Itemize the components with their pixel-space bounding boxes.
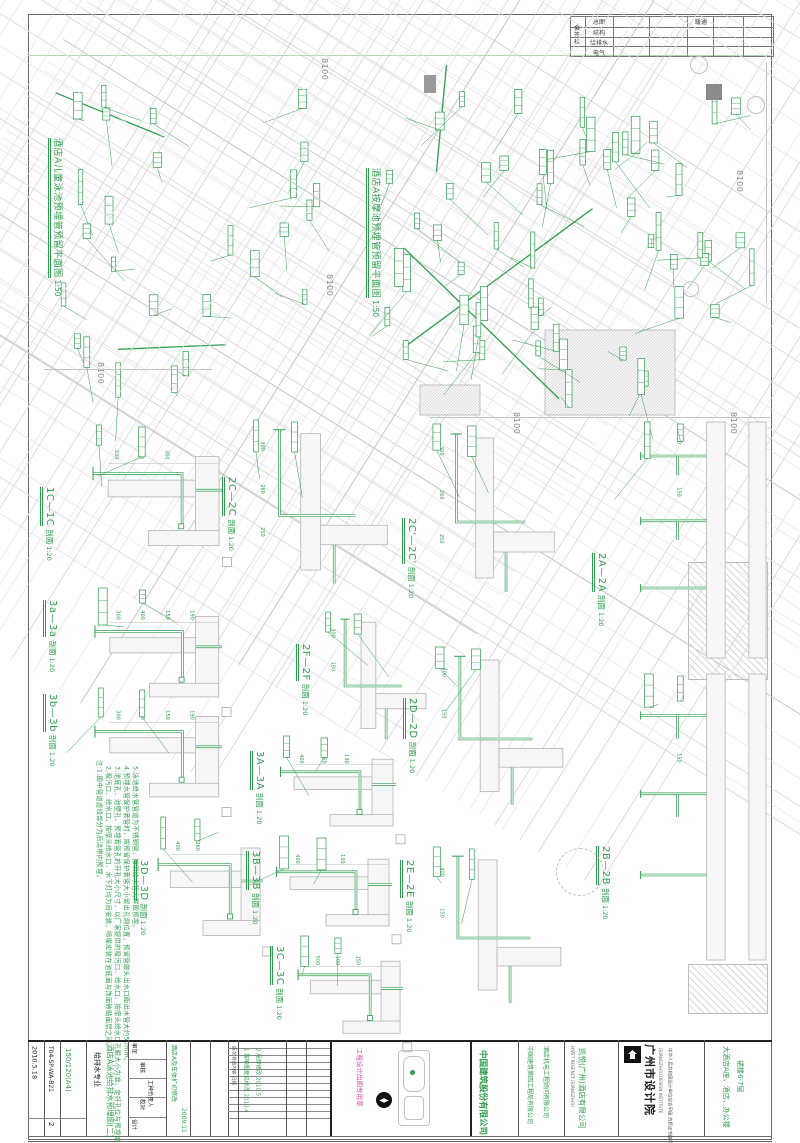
section-detail-2E: 400150 xyxy=(426,845,571,1031)
section-label-3B: 3B—3B剖面1:20 xyxy=(250,851,266,925)
tb-staff-approver: 审定 xyxy=(130,1043,136,1054)
svg-text:300: 300 xyxy=(163,450,169,460)
svg-text:300: 300 xyxy=(114,610,120,620)
svg-text:250: 250 xyxy=(438,534,444,544)
svg-text:400: 400 xyxy=(298,754,304,764)
section-label-3D: 3D—3D剖面1:20 xyxy=(138,860,154,935)
tb-contractor: 中国建筑股份有限公司 xyxy=(478,1050,487,1135)
sig-row-label-electrical: 电气 xyxy=(585,46,613,57)
axis-dim-8100: 8100 xyxy=(320,58,328,80)
plan-title-massage-pool: 酒店A按摩池预埋管预留平面图1:50 xyxy=(370,168,386,317)
notes-line: 注:1.图中管道虚线部分为后浇带内预埋。 xyxy=(95,760,101,881)
section-label-2B: 2B—2B剖面1:20 xyxy=(600,846,616,920)
svg-text:260: 260 xyxy=(194,841,200,851)
axis-dim-8100: 8100 xyxy=(735,170,743,192)
section-label-2C: 2C—2C剖面1:20 xyxy=(226,477,242,551)
dimension-line xyxy=(766,62,767,302)
grid-bubble xyxy=(690,56,708,74)
svg-text:150: 150 xyxy=(329,662,335,672)
solid-marker xyxy=(424,75,436,93)
grid-bubble xyxy=(683,281,699,297)
section-label-2A: 2A—2A剖面1:20 xyxy=(596,553,612,627)
tb-mep-consultant: 酒店机电工程顾问有限公司 xyxy=(542,1046,548,1118)
svg-text:260: 260 xyxy=(259,484,265,494)
svg-text:400: 400 xyxy=(174,841,180,851)
plan-title-text: 酒店A按摩池预埋管预留平面图 xyxy=(366,168,380,298)
section-detail-2C2: 300260250 xyxy=(426,422,564,622)
svg-text:190: 190 xyxy=(189,610,195,620)
svg-text:260: 260 xyxy=(438,490,444,500)
section-detail-2A: 500150 xyxy=(638,420,770,660)
svg-text:500: 500 xyxy=(314,956,320,966)
tb-revision-row: 2 局部修改 2010.5 xyxy=(254,1048,260,1096)
institute-logo-icon xyxy=(624,1046,641,1063)
svg-text:150: 150 xyxy=(439,908,445,918)
drawing-sheet: 会签栏 总图 结构 给排水 电气 暖通 酒店A儿童泳池预埋管预留平面图1:50 … xyxy=(0,0,800,1143)
section-label-2E: 2E—2E剖面1:20 xyxy=(404,860,420,932)
plan-scale: 1:50 xyxy=(53,280,62,297)
plan-massage-pool xyxy=(374,58,772,420)
section-label-3C: 3C—3C剖面1:20 xyxy=(274,946,290,1020)
tb-revision-row: 1 按审图意见修改 2010.4 xyxy=(242,1048,248,1113)
notes-line: 5.泳池给水管管道为不锈钢管，按照给水管大样图预埋。 xyxy=(131,766,137,931)
tb-date: 2010.5.18 xyxy=(31,1046,38,1079)
plan-title-text: 酒店A儿童泳池预埋管预留平面图 xyxy=(48,138,62,278)
tb-staff-designer: 设计 xyxy=(130,1119,136,1130)
svg-text:300: 300 xyxy=(114,710,120,720)
svg-text:300: 300 xyxy=(259,441,265,451)
tb-client: 凯悦(广州)酒店有限公司 xyxy=(578,1048,586,1129)
section-label-2F: 2F—2F剖面1:20 xyxy=(300,644,316,715)
north-arrow-icon: ◀▶ xyxy=(376,1092,392,1108)
tb-staff-lead: 工种负责人 xyxy=(146,1080,152,1108)
tb-client-en: HYATT REGENCY GUANGZHOU xyxy=(570,1046,574,1107)
tb-project: 大酒店A座、酒店、办公楼 xyxy=(722,1046,729,1128)
section-detail-2C: 300260250 xyxy=(246,418,398,613)
tb-revision-note: 酒店A及车体扩初修改 xyxy=(170,1044,176,1102)
axis-dim-8100: 8100 xyxy=(325,274,333,296)
tb-doc-number: T04-SP-WA-B21 xyxy=(47,1046,53,1092)
section-label-3a: 3a—3a剖面1:20 xyxy=(47,600,63,672)
svg-text:100: 100 xyxy=(334,956,340,966)
plan-scale: 1:50 xyxy=(371,300,380,317)
section-label-2C2: 2C'—2C'剖面1:20 xyxy=(406,518,422,598)
tb-sheet-number: 150/120(A4) xyxy=(64,1048,71,1092)
tb-institute-en: GUANGZHOU DESIGN INSTITUTE xyxy=(658,1048,662,1113)
section-label-3A: 3A—3A剖面1:20 xyxy=(254,751,270,825)
svg-text:150: 150 xyxy=(676,753,682,763)
grid-bubble xyxy=(747,96,765,114)
section-detail-2B: 500150 xyxy=(638,672,770,962)
solid-marker xyxy=(706,84,722,100)
svg-text:250: 250 xyxy=(259,527,265,537)
svg-text:150: 150 xyxy=(676,487,682,497)
svg-text:190: 190 xyxy=(339,854,345,864)
tb-staff-reviewer: 审核 xyxy=(138,1062,144,1073)
section-detail-2D: 400150 xyxy=(428,645,573,833)
svg-text:400: 400 xyxy=(294,854,300,864)
pool-wall-hatch xyxy=(688,964,768,1014)
section-label-3b: 3b—3b剖面1:20 xyxy=(47,694,63,767)
dimension-line xyxy=(430,417,770,418)
svg-text:400: 400 xyxy=(139,610,145,620)
tb-staff-checker: 校对 xyxy=(138,1099,144,1110)
svg-text:230: 230 xyxy=(113,450,119,460)
tb-project2: 裙楼6-7层 xyxy=(736,1060,743,1092)
tb-version: 2 xyxy=(47,1122,54,1126)
svg-text:190: 190 xyxy=(189,710,195,720)
tb-contractor2: 中国建筑第四工程局有限公司 xyxy=(526,1046,532,1124)
tb-institute-cert: 中华人民共和国设计单位综合甲级 资质证书编号:120001甲 xyxy=(666,1048,671,1143)
dimension-line xyxy=(44,369,212,370)
section-label-1C: 1C—1C剖面1:20 xyxy=(44,487,60,561)
signature-table: 会签栏 总图 结构 给排水 电气 暖通 xyxy=(570,16,774,57)
tb-drawing-title: 酒店A泳池给排水预埋图(二) xyxy=(106,1044,114,1137)
svg-text:190: 190 xyxy=(343,754,349,764)
tb-seal-text: 工程设计出图专用章 xyxy=(356,1048,363,1107)
notes-line: 4.预埋水管保护套管时，按预留保护套管大小留出孔洞位置，预留管端头出水口距出水管… xyxy=(122,766,128,1065)
axis-dim-8100: 8100 xyxy=(96,362,104,384)
svg-text:150: 150 xyxy=(355,956,361,966)
tb-revision-date: 2009.11 xyxy=(180,1108,186,1133)
tb-discipline: 给排水专业 xyxy=(93,1052,100,1087)
plan-title-children-pool: 酒店A儿童泳池预埋管预留平面图1:50 xyxy=(52,138,68,297)
tb-revision-headers: 版次 修改内容 日期 xyxy=(230,1046,235,1085)
svg-text:150: 150 xyxy=(164,710,170,720)
tb-institute: 广州市设计院 xyxy=(644,1044,655,1116)
notes-line: 2.吸污口、给水口、按摩头给水口、水下灯均为后安装，喷嘴应装在池底面与饰面砖贴面… xyxy=(104,766,110,1050)
svg-text:150: 150 xyxy=(441,709,447,719)
